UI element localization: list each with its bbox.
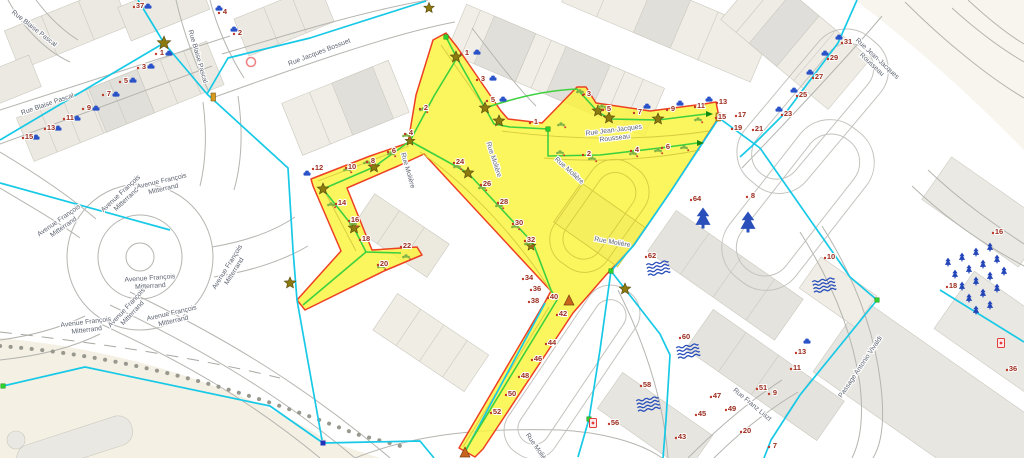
svg-text:52: 52	[493, 407, 501, 416]
svg-text:6: 6	[392, 146, 396, 155]
svg-text:17: 17	[738, 110, 746, 119]
svg-text:40: 40	[550, 292, 558, 301]
svg-text:45: 45	[698, 409, 706, 418]
svg-text:13: 13	[47, 123, 55, 132]
svg-text:22: 22	[403, 241, 411, 250]
svg-text:30: 30	[515, 218, 523, 227]
hydrant-icon	[590, 419, 597, 428]
svg-text:20: 20	[743, 426, 751, 435]
node-dot-icon	[546, 127, 550, 131]
svg-text:56: 56	[611, 418, 619, 427]
svg-text:26: 26	[483, 179, 491, 188]
svg-text:8: 8	[371, 156, 375, 165]
svg-text:7: 7	[638, 107, 642, 116]
svg-text:7: 7	[107, 89, 111, 98]
svg-text:16: 16	[995, 227, 1003, 236]
svg-text:16: 16	[351, 215, 359, 224]
svg-text:14: 14	[338, 198, 347, 207]
svg-text:20: 20	[380, 259, 388, 268]
svg-text:43: 43	[678, 432, 686, 441]
node-dot-icon	[875, 298, 879, 302]
svg-text:44: 44	[548, 338, 557, 347]
svg-text:1: 1	[534, 117, 538, 126]
svg-text:62: 62	[648, 251, 656, 260]
svg-text:37: 37	[136, 1, 144, 10]
svg-text:23: 23	[784, 109, 792, 118]
svg-text:19: 19	[734, 123, 742, 132]
svg-text:36: 36	[533, 284, 541, 293]
svg-text:18: 18	[362, 234, 370, 243]
svg-text:8: 8	[751, 191, 755, 200]
svg-text:47: 47	[713, 391, 721, 400]
svg-text:34: 34	[525, 273, 534, 282]
svg-text:15: 15	[25, 132, 33, 141]
amber-marker-icon	[211, 93, 216, 101]
svg-text:2: 2	[587, 149, 591, 158]
svg-text:13: 13	[719, 97, 727, 106]
junction-dot-icon	[321, 441, 326, 446]
svg-text:48: 48	[521, 371, 529, 380]
svg-text:32: 32	[527, 235, 535, 244]
svg-text:51: 51	[759, 383, 767, 392]
network-line	[366, 252, 401, 253]
svg-text:3: 3	[481, 74, 485, 83]
svg-text:25: 25	[799, 90, 807, 99]
svg-text:5: 5	[607, 104, 611, 113]
svg-text:38: 38	[531, 296, 539, 305]
svg-text:3: 3	[587, 89, 591, 98]
svg-text:21: 21	[755, 124, 763, 133]
svg-text:9: 9	[671, 104, 675, 113]
svg-text:5: 5	[124, 76, 128, 85]
node-dot-icon	[609, 269, 613, 273]
map-canvas[interactable]: Rue Blaise PascalRue Blaise PascalRue Bl…	[0, 0, 1024, 458]
svg-text:1: 1	[465, 48, 469, 57]
svg-text:46: 46	[534, 354, 542, 363]
svg-text:9: 9	[87, 103, 91, 112]
svg-text:27: 27	[815, 72, 823, 81]
svg-text:64: 64	[693, 194, 702, 203]
svg-text:12: 12	[315, 163, 323, 172]
svg-text:31: 31	[844, 37, 852, 46]
svg-text:49: 49	[728, 404, 736, 413]
svg-text:2: 2	[238, 28, 242, 37]
svg-text:18: 18	[949, 281, 957, 290]
svg-text:9: 9	[773, 388, 777, 397]
svg-text:5: 5	[491, 95, 495, 104]
svg-text:11: 11	[697, 101, 705, 110]
svg-text:29: 29	[830, 53, 838, 62]
svg-text:11: 11	[793, 363, 801, 372]
svg-text:7: 7	[773, 441, 777, 450]
svg-text:6: 6	[666, 142, 670, 151]
node-dot-icon	[1, 384, 5, 388]
svg-text:10: 10	[827, 252, 835, 261]
svg-text:50: 50	[508, 389, 516, 398]
svg-text:42: 42	[559, 309, 567, 318]
svg-text:11: 11	[66, 113, 74, 122]
svg-text:15: 15	[718, 112, 726, 121]
svg-text:36: 36	[1009, 364, 1017, 373]
svg-text:2: 2	[424, 103, 428, 112]
hydrant-icon	[998, 339, 1005, 348]
svg-text:1: 1	[160, 48, 164, 57]
svg-text:10: 10	[348, 162, 356, 171]
svg-text:28: 28	[500, 197, 508, 206]
svg-text:3: 3	[142, 62, 146, 71]
svg-text:13: 13	[798, 347, 806, 356]
svg-text:24: 24	[456, 157, 465, 166]
svg-text:58: 58	[643, 380, 651, 389]
node-dot-icon	[444, 35, 448, 39]
svg-text:60: 60	[682, 332, 690, 341]
